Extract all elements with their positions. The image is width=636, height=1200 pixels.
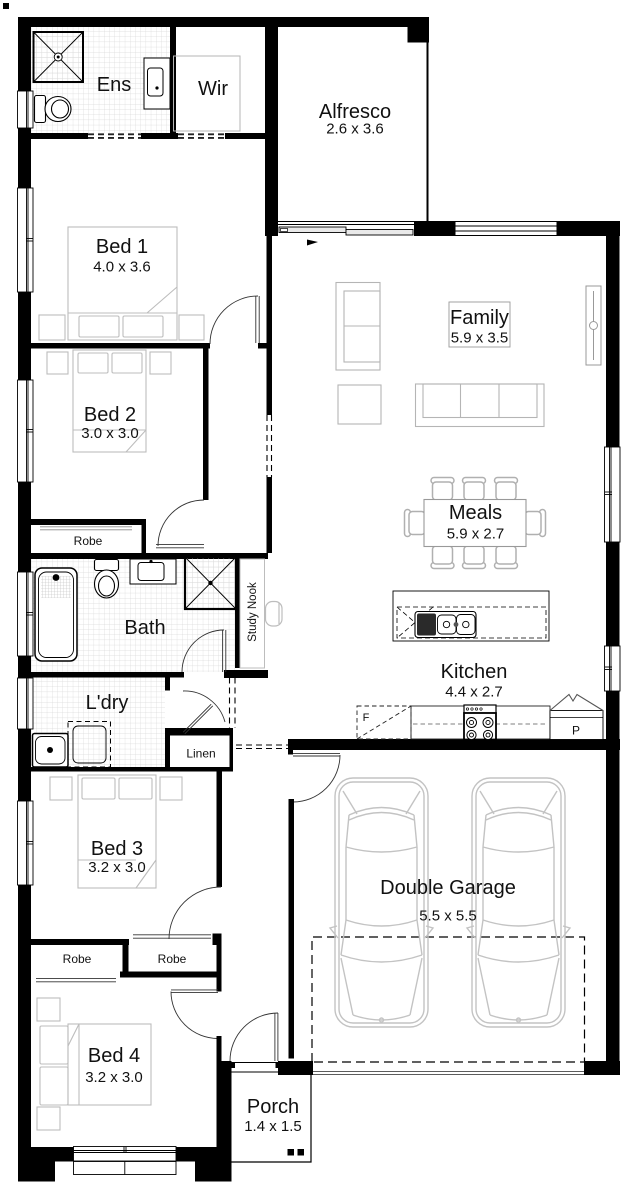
svg-text:Family: Family: [450, 307, 509, 329]
svg-text:Wir: Wir: [198, 78, 228, 100]
svg-text:3.0 x 3.0: 3.0 x 3.0: [81, 425, 139, 442]
svg-text:1.4 x 1.5: 1.4 x 1.5: [244, 1118, 302, 1135]
svg-text:Bath: Bath: [124, 617, 165, 639]
svg-text:Ens: Ens: [97, 74, 131, 96]
svg-text:3.2 x 3.0: 3.2 x 3.0: [85, 1069, 143, 1086]
svg-text:Meals: Meals: [449, 502, 502, 524]
svg-text:Robe: Robe: [158, 952, 187, 966]
svg-text:4.0 x 3.6: 4.0 x 3.6: [93, 259, 151, 276]
svg-text:5.9 x 3.5: 5.9 x 3.5: [451, 330, 509, 347]
svg-text:Robe: Robe: [74, 534, 103, 548]
svg-text:2.6 x 3.6: 2.6 x 3.6: [326, 121, 384, 138]
svg-text:Porch: Porch: [247, 1096, 299, 1118]
svg-text:Double Garage: Double Garage: [380, 877, 516, 899]
svg-text:Bed 2: Bed 2: [84, 404, 136, 426]
svg-text:Bed 1: Bed 1: [96, 236, 148, 258]
svg-text:F: F: [363, 712, 370, 724]
svg-text:5.5 x 5.5: 5.5 x 5.5: [419, 908, 477, 925]
svg-text:Bed 4: Bed 4: [88, 1045, 140, 1067]
svg-text:P: P: [572, 724, 580, 738]
svg-text:Bed 3: Bed 3: [91, 838, 143, 860]
svg-text:Linen: Linen: [186, 747, 215, 761]
svg-text:L'dry: L'dry: [86, 692, 129, 714]
svg-text:Study Nook: Study Nook: [247, 582, 259, 642]
svg-text:Kitchen: Kitchen: [441, 661, 508, 683]
svg-text:Robe: Robe: [63, 952, 92, 966]
svg-text:3.2 x 3.0: 3.2 x 3.0: [88, 859, 146, 876]
svg-text:4.4 x 2.7: 4.4 x 2.7: [445, 684, 503, 701]
svg-text:5.9 x 2.7: 5.9 x 2.7: [447, 526, 505, 543]
